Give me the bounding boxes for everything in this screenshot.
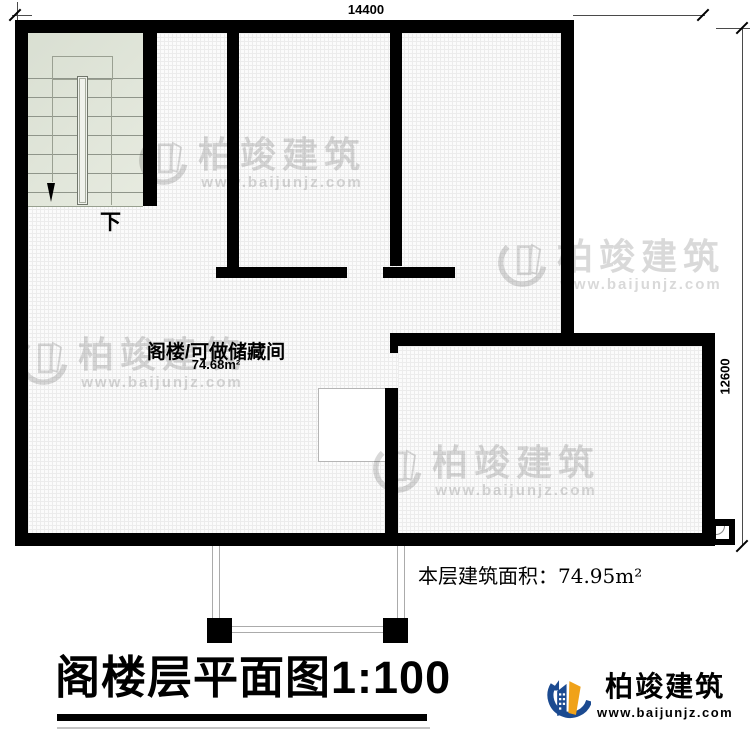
dim-right-line [742,28,743,546]
dim-top-label: 14400 [330,2,402,17]
stair-flight-edge [111,78,112,205]
wall-right-upper [561,20,574,346]
brand-texts: 柏竣建筑 www.baijunjz.com [597,672,733,720]
floor-plan-canvas: 下 14400 12600 阁楼/可做储藏间 74.68m² 本层建筑面积：74… [0,0,750,742]
stair-down-arrow-icon [47,183,55,202]
plan-title: 阁楼层平面图1:100 [55,641,451,706]
title-underline-thin [57,727,430,729]
wall-interior-1 [227,33,239,268]
watermark-title: 柏竣建筑 [557,239,725,275]
title-underline [57,714,427,721]
brand-logo: 柏竣建筑 www.baijunjz.com [544,672,733,729]
brand-name: 柏竣建筑 [605,672,725,703]
stair-handrail-inner [79,78,86,203]
stair-flight-edge [52,78,53,182]
wall-extension-right [702,333,715,546]
wall-top [15,20,574,33]
stair-handrail [77,76,88,205]
wall-extension-top-notch [390,346,398,353]
wall-stair-right [143,33,157,206]
wall-stub-a [216,267,347,278]
porch-post-line [219,546,220,618]
corner-flue-arc [716,526,725,535]
wall-extension-top [390,333,715,346]
porch-beam-line [232,626,383,627]
wall-extension-left [385,388,398,533]
porch-post-line [404,546,405,618]
brand-logo-icon [544,672,591,729]
floor-void-opening [318,388,386,462]
porch-column [207,618,232,643]
dim-right-extension [716,28,750,29]
dim-right-label: 12600 [718,347,733,407]
floor-hatch-extension [398,346,702,533]
stair-direction-label: 下 [100,206,121,236]
floor-area-note: 本层建筑面积：74.95m² [418,560,642,589]
corner-flue-box-inner [716,526,729,539]
porch-column [383,618,408,643]
corner-flue-box [710,519,735,545]
wall-interior-2 [390,33,402,266]
room-area-label: 74.68m² [106,357,326,372]
porch-beam-line [232,632,383,633]
dim-top-line-right [573,15,705,16]
wall-left [15,20,28,546]
watermark-url: www.baijunjz.com [560,276,721,293]
porch-post-line [397,546,398,618]
wall-bottom [15,533,715,546]
wall-stub-b [383,267,455,278]
brand-url: www.baijunjz.com [597,705,733,720]
watermark-texts: 柏竣建筑 www.baijunjz.com [557,239,725,293]
porch-post-line [212,546,213,618]
